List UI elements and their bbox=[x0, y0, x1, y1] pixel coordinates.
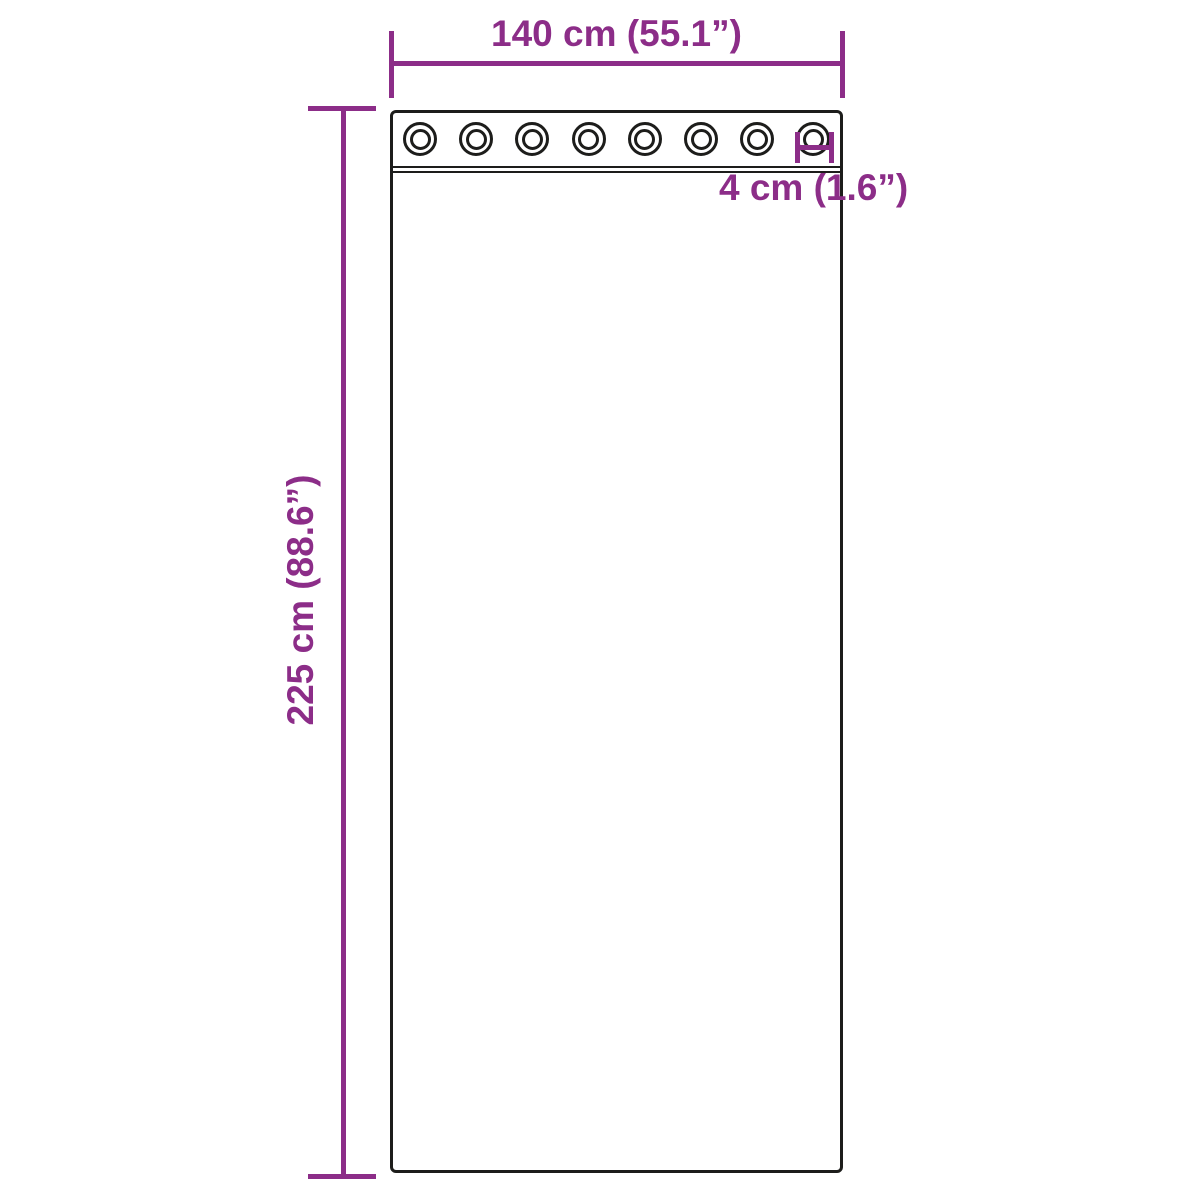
grommet-row bbox=[393, 113, 840, 173]
grommet-ring bbox=[628, 122, 662, 156]
width-dimension-label: 140 cm (55.1”) bbox=[390, 12, 843, 56]
grommet-inner-ring bbox=[747, 129, 768, 150]
height-dimension-tick-top bbox=[308, 106, 376, 111]
grommet-inner-ring bbox=[522, 129, 543, 150]
grommet-inner-ring bbox=[691, 129, 712, 150]
grommet-inner-ring bbox=[578, 129, 599, 150]
grommet-ring bbox=[572, 122, 606, 156]
grommet-dimension-label: 4 cm (1.6”) bbox=[719, 166, 908, 210]
height-dimension-tick-bottom bbox=[308, 1174, 376, 1179]
curtain-panel bbox=[390, 110, 843, 1173]
grommet-dimension-line bbox=[795, 145, 834, 150]
grommet-inner-ring bbox=[466, 129, 487, 150]
width-dimension-line bbox=[390, 61, 843, 66]
grommet-inner-ring bbox=[634, 129, 655, 150]
grommet-ring bbox=[796, 122, 830, 156]
grommet-inner-ring bbox=[410, 129, 431, 150]
grommet-ring bbox=[403, 122, 437, 156]
diagram-canvas: 140 cm (55.1”) 225 cm (88.6”) 4 cm (1.6”… bbox=[0, 0, 1200, 1200]
height-dimension-line bbox=[341, 106, 346, 1179]
grommet-ring bbox=[684, 122, 718, 156]
height-dimension-label: 225 cm (88.6”) bbox=[279, 475, 323, 726]
grommet-ring bbox=[459, 122, 493, 156]
grommet-ring bbox=[515, 122, 549, 156]
grommet-ring bbox=[740, 122, 774, 156]
